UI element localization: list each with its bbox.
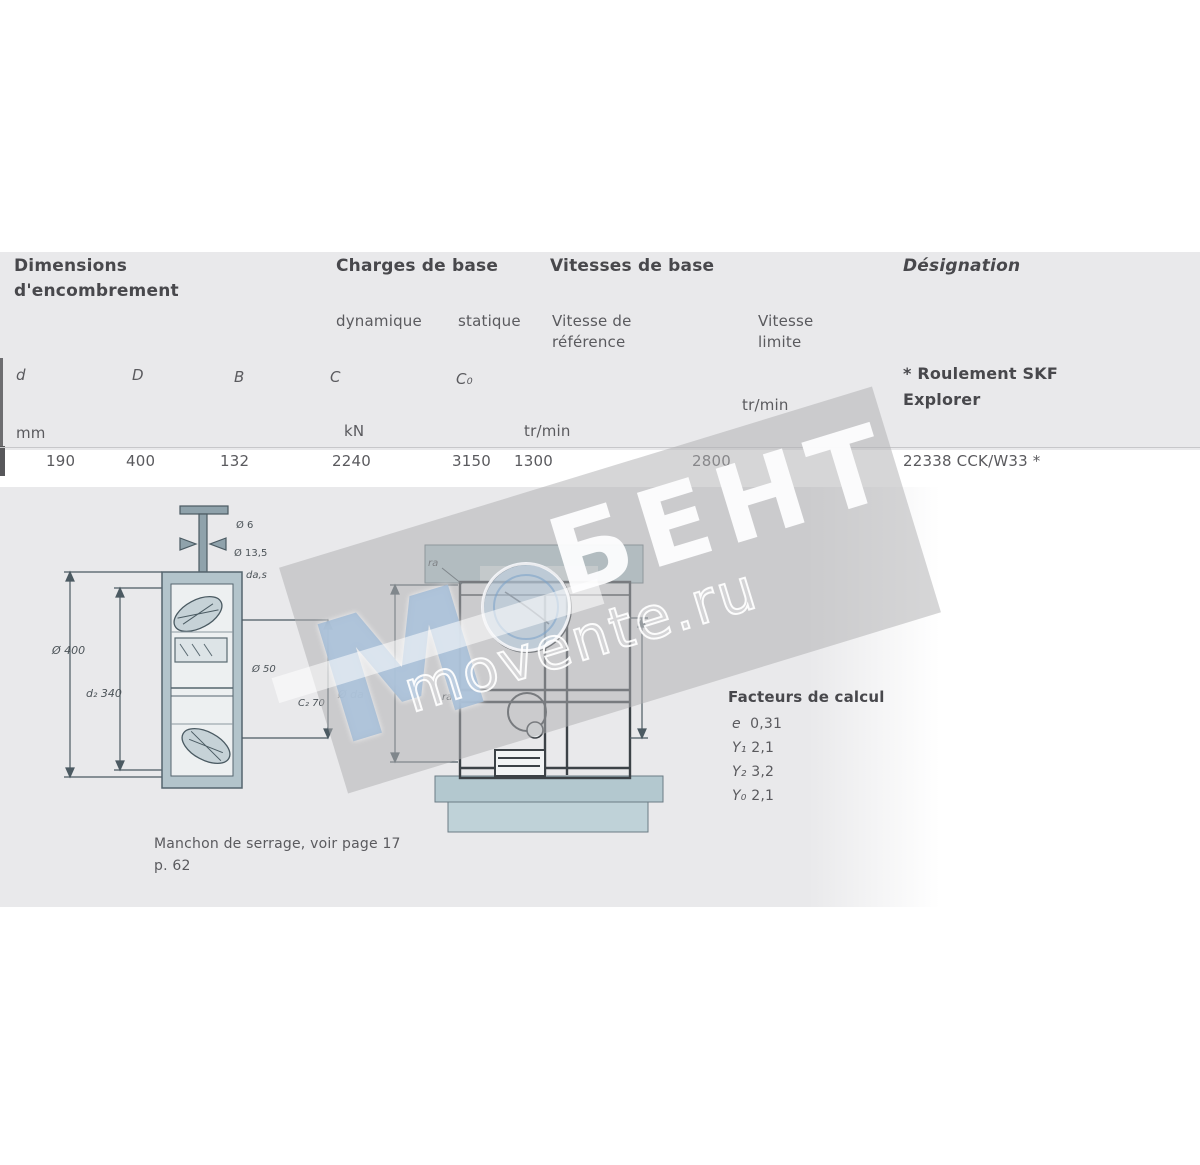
calc-factors-title: Facteurs de calcul <box>728 688 885 706</box>
symbol-C0: C₀ <box>456 370 473 388</box>
calc-factor-value: 2,1 <box>751 740 774 756</box>
shaft-shoulder-bottom <box>435 776 663 832</box>
cell-designation: 22338 CCK/W33 * <box>903 452 1041 470</box>
cell-bore-diameter: 190 <box>46 452 75 470</box>
table-header-panel <box>0 252 1200 450</box>
figure-footnote-line2: p. 62 <box>154 858 191 874</box>
bearing-body <box>162 572 242 788</box>
subheader-lim-speed-line2: limite <box>758 333 801 351</box>
symbol-d: d <box>16 366 26 384</box>
symbol-B: B <box>234 368 245 386</box>
calc-factor-value: 3,2 <box>751 764 774 780</box>
outer-diameter-label: Ø 400 <box>51 644 85 657</box>
calc-factor-y1: Y₁ 2,1 <box>732 740 774 756</box>
symbol-D: D <box>132 366 144 384</box>
subheader-dynamic: dynamique <box>336 312 422 330</box>
cell-static-load: 3150 <box>452 452 491 470</box>
lubrication-fitting <box>180 506 228 572</box>
col-group-speed-ratings: Vitesses de base <box>550 256 714 276</box>
subheader-ref-speed-line2: référence <box>552 333 625 351</box>
calc-factor-y2: Y₂ 3,2 <box>732 764 774 780</box>
unit-rpm-lim: tr/min <box>742 396 789 414</box>
lube-hole-label: Ø 6 <box>236 519 253 531</box>
col-group-dimensions-line1: Dimensions <box>14 256 127 276</box>
table-header-rule <box>0 447 1200 448</box>
subheader-ref-speed-line1: Vitesse de <box>552 312 632 330</box>
explorer-note-line1: * Roulement SKF <box>903 364 1058 383</box>
calc-factor-symbol: e <box>732 716 741 732</box>
calc-factor-value: 2,1 <box>751 788 774 804</box>
inner-diameter-label: d₂ 340 <box>86 687 122 700</box>
locknut-detail <box>495 750 545 776</box>
col-group-dimensions-line2: d'encombrement <box>14 281 179 301</box>
unit-kn: kN <box>344 422 364 440</box>
calc-factor-symbol: Y₁ <box>732 740 747 756</box>
outer-dimension-line <box>64 572 162 777</box>
abutment-label: da,s <box>246 570 267 581</box>
subheader-lim-speed-line1: Vitesse <box>758 312 813 330</box>
calc-factor-symbol: Y₂ <box>732 764 747 780</box>
unit-rpm-ref: tr/min <box>524 422 571 440</box>
page-left-border-mark <box>0 446 5 476</box>
calc-factor-value: 0,31 <box>750 716 782 732</box>
right-diameter-label: Ø 50 <box>251 663 276 675</box>
calc-factor-symbol: Y₀ <box>732 788 747 804</box>
inner-ring-section <box>175 638 227 662</box>
catalog-page: Dimensions d'encombrement Charges de bas… <box>0 0 1200 1165</box>
lube-groove-label: Ø 13,5 <box>234 547 267 559</box>
subheader-static: statique <box>458 312 521 330</box>
inner-dimension-line <box>114 588 162 770</box>
cell-reference-speed: 1300 <box>514 452 553 470</box>
explorer-note-line2: Explorer <box>903 390 980 409</box>
calc-factor-y0: Y₀ 2,1 <box>732 788 774 804</box>
symbol-C: C <box>330 368 341 386</box>
cell-outside-diameter: 400 <box>126 452 155 470</box>
unit-mm: mm <box>16 424 46 442</box>
cell-width: 132 <box>220 452 249 470</box>
col-group-designation: Désignation <box>903 256 1020 276</box>
calc-factor-e: e 0,31 <box>732 716 782 732</box>
col-group-load-ratings: Charges de base <box>336 256 498 276</box>
cell-dynamic-load: 2240 <box>332 452 371 470</box>
